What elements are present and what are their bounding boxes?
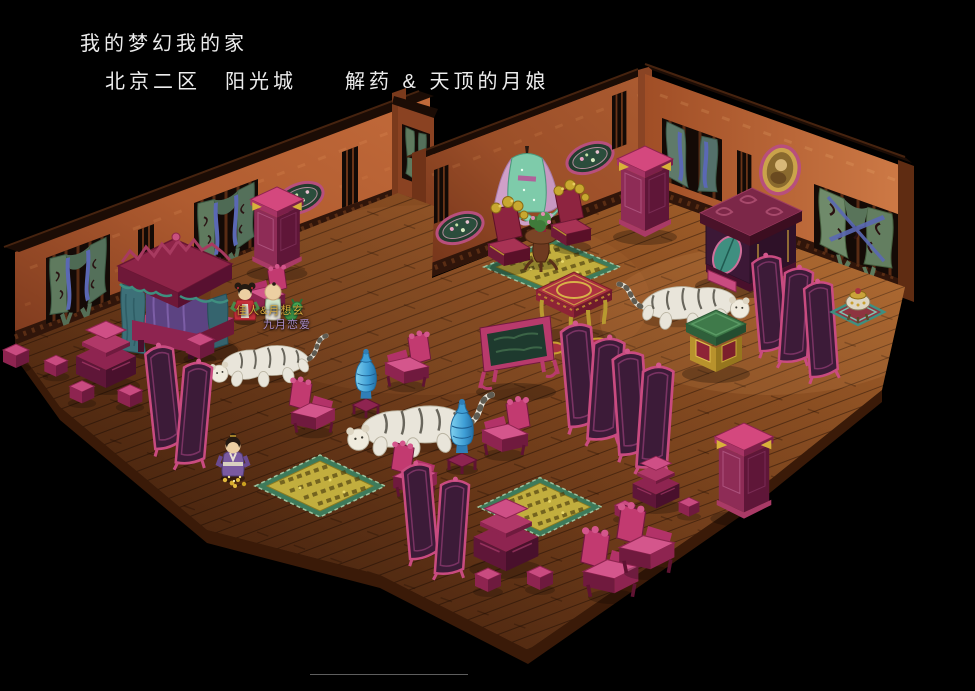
room-scene [0,0,975,691]
caption-line-2: 北京二区 阳光城 解药 & 天顶的月娘 [105,65,549,94]
partner-name-label: 九月恋爱 [263,316,311,332]
table-screen[interactable] [476,316,558,401]
lattice-slit-left-2 [342,146,358,208]
lattice-slit-mid-1 [434,165,448,224]
game-screenshot: 我的梦幻我的家 北京二区 阳光城 解药 & 天顶的月娘 佳人&月想玄 九月恋爱 [0,0,975,691]
signature-line [310,674,468,675]
caption-line-1: 我的梦幻我的家 [80,27,248,56]
lattice-slit-mid-2 [612,91,626,150]
